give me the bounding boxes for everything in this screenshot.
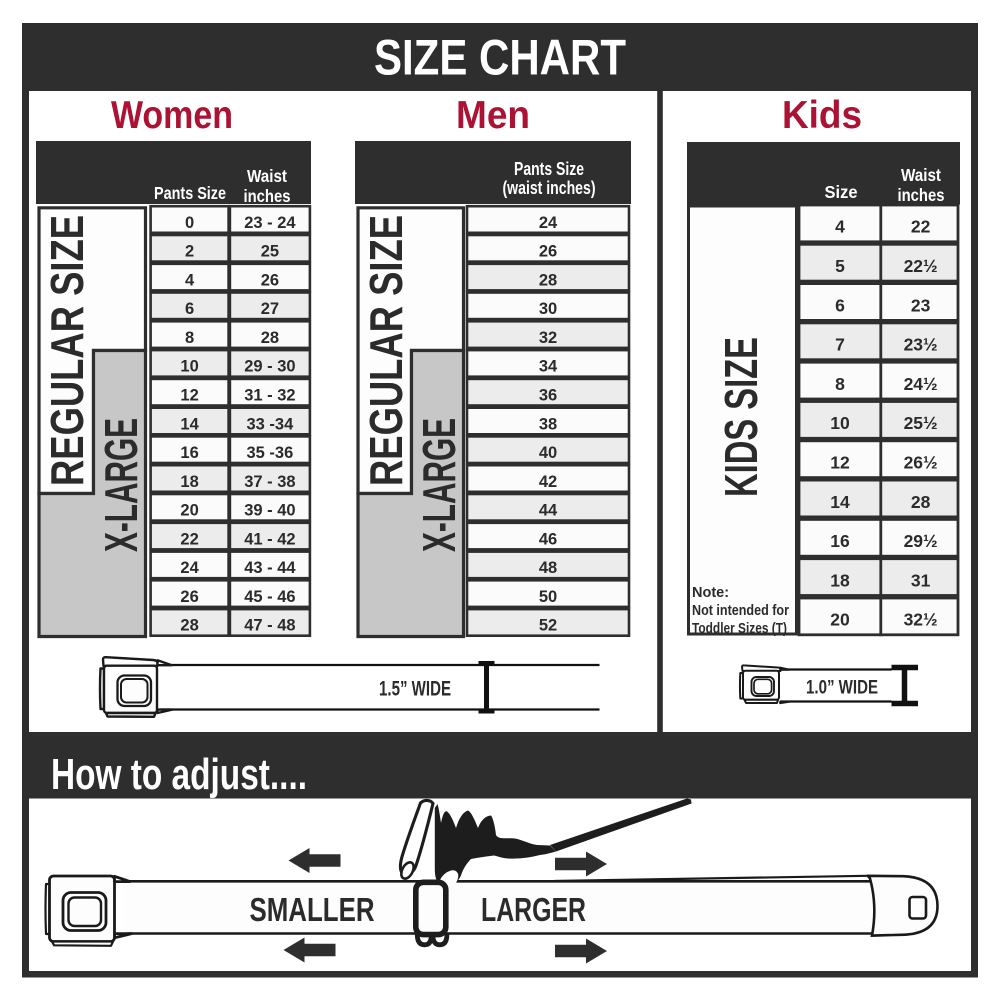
svg-text:4: 4 (185, 271, 195, 289)
svg-text:Not intended for: Not intended for (692, 603, 789, 619)
svg-text:22: 22 (911, 217, 931, 237)
svg-text:Waist: Waist (247, 166, 287, 186)
svg-text:43 - 44: 43 - 44 (244, 559, 296, 577)
svg-text:SMALLER: SMALLER (250, 891, 375, 928)
svg-text:23: 23 (911, 295, 931, 315)
svg-text:36: 36 (539, 387, 557, 405)
svg-text:23½: 23½ (904, 335, 938, 355)
svg-text:18: 18 (830, 570, 850, 590)
svg-text:inches: inches (244, 186, 291, 206)
svg-text:X-LARGE: X-LARGE (95, 418, 147, 552)
svg-text:48: 48 (539, 559, 557, 577)
svg-text:26: 26 (539, 243, 557, 261)
svg-text:Pants Size: Pants Size (514, 159, 584, 179)
svg-text:1.0” WIDE: 1.0” WIDE (806, 677, 878, 699)
svg-text:REGULAR SIZE: REGULAR SIZE (41, 215, 93, 486)
svg-text:Women: Women (111, 94, 233, 137)
svg-text:30: 30 (539, 300, 557, 318)
svg-text:29 - 30: 29 - 30 (244, 358, 295, 376)
svg-text:25½: 25½ (904, 413, 938, 433)
svg-text:52: 52 (539, 617, 557, 635)
svg-text:inches: inches (898, 185, 945, 205)
svg-text:50: 50 (539, 588, 557, 606)
svg-text:6: 6 (185, 300, 194, 318)
svg-text:33 -34: 33 -34 (247, 415, 295, 433)
svg-text:Men: Men (456, 94, 530, 137)
svg-text:25: 25 (261, 243, 279, 261)
svg-text:32½: 32½ (904, 610, 938, 630)
svg-text:46: 46 (539, 530, 557, 548)
svg-text:12: 12 (180, 387, 198, 405)
svg-text:8: 8 (835, 374, 845, 394)
svg-text:28: 28 (539, 271, 557, 289)
svg-text:27: 27 (261, 300, 279, 318)
svg-text:22½: 22½ (904, 256, 938, 276)
svg-text:Pants Size: Pants Size (154, 183, 226, 203)
svg-text:Toddler Sizes (T): Toddler Sizes (T) (692, 621, 787, 637)
svg-text:28: 28 (261, 329, 279, 347)
svg-text:29½: 29½ (904, 531, 938, 551)
svg-text:37 - 38: 37 - 38 (244, 473, 295, 491)
svg-text:Size: Size (825, 182, 858, 202)
svg-text:Note:: Note: (692, 585, 729, 601)
svg-text:26: 26 (261, 271, 279, 289)
svg-text:How to adjust....: How to adjust.... (51, 750, 307, 799)
svg-text:32: 32 (539, 329, 557, 347)
svg-text:5: 5 (835, 256, 845, 276)
svg-text:7: 7 (835, 335, 845, 355)
svg-text:4: 4 (835, 217, 845, 237)
svg-text:28: 28 (911, 492, 931, 512)
svg-text:14: 14 (180, 415, 199, 433)
svg-text:8: 8 (185, 329, 194, 347)
svg-text:23 - 24: 23 - 24 (244, 214, 296, 232)
svg-text:41 - 42: 41 - 42 (244, 530, 295, 548)
svg-text:28: 28 (180, 617, 198, 635)
svg-text:38: 38 (539, 415, 557, 433)
svg-text:12: 12 (830, 453, 850, 473)
svg-text:LARGER: LARGER (481, 891, 586, 928)
svg-text:35 -36: 35 -36 (247, 444, 294, 462)
svg-text:SIZE CHART: SIZE CHART (374, 30, 626, 86)
svg-text:31 - 32: 31 - 32 (244, 387, 295, 405)
svg-text:X-LARGE: X-LARGE (413, 418, 465, 552)
svg-text:10: 10 (180, 358, 198, 376)
svg-text:31: 31 (911, 570, 931, 590)
svg-text:39 - 40: 39 - 40 (244, 502, 295, 520)
svg-text:Kids: Kids (782, 94, 862, 137)
svg-text:14: 14 (830, 492, 850, 512)
svg-text:1.5” WIDE: 1.5” WIDE (379, 678, 451, 701)
svg-text:42: 42 (539, 473, 557, 491)
svg-text:24½: 24½ (904, 374, 938, 394)
svg-text:26½: 26½ (904, 453, 938, 473)
svg-text:(waist inches): (waist inches) (503, 178, 596, 198)
svg-text:24: 24 (180, 559, 199, 577)
svg-text:20: 20 (830, 610, 850, 630)
svg-text:Waist: Waist (901, 165, 941, 185)
svg-text:REGULAR SIZE: REGULAR SIZE (360, 215, 412, 486)
svg-text:2: 2 (185, 243, 194, 261)
svg-text:22: 22 (180, 530, 198, 548)
svg-text:10: 10 (830, 413, 850, 433)
svg-text:16: 16 (830, 531, 850, 551)
svg-text:44: 44 (539, 502, 558, 520)
svg-text:18: 18 (180, 473, 198, 491)
svg-text:45 - 46: 45 - 46 (244, 588, 295, 606)
svg-text:6: 6 (835, 295, 845, 315)
svg-text:0: 0 (185, 214, 194, 232)
svg-text:40: 40 (539, 444, 557, 462)
svg-text:34: 34 (539, 358, 558, 376)
svg-text:47 - 48: 47 - 48 (244, 617, 295, 635)
svg-text:16: 16 (180, 444, 198, 462)
svg-text:24: 24 (539, 214, 558, 232)
svg-text:KIDS SIZE: KIDS SIZE (715, 337, 767, 497)
svg-text:20: 20 (180, 502, 198, 520)
svg-text:26: 26 (180, 588, 198, 606)
